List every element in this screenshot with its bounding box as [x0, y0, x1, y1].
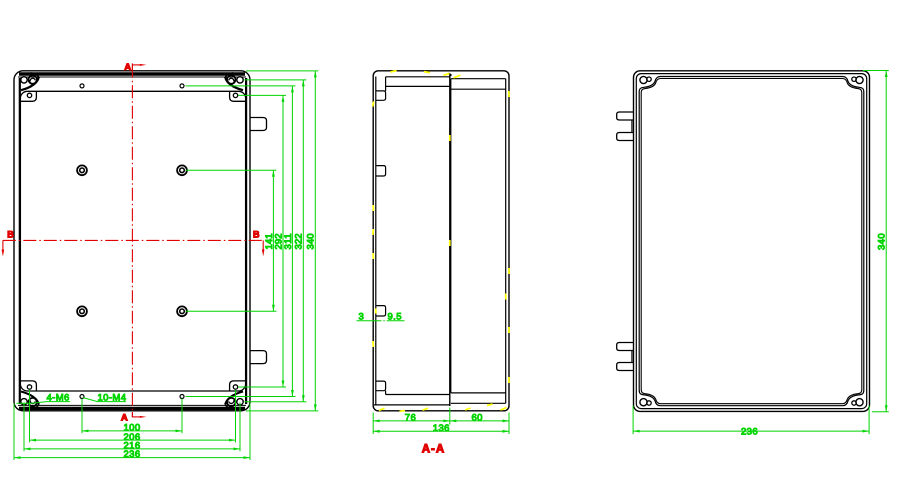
svg-text:340: 340	[306, 233, 317, 250]
svg-text:322: 322	[294, 233, 305, 250]
svg-text:B: B	[253, 230, 260, 240]
svg-text:A-A: A-A	[422, 443, 445, 455]
svg-text:340: 340	[877, 233, 888, 250]
svg-text:236: 236	[741, 426, 758, 437]
svg-text:236: 236	[124, 449, 141, 460]
svg-text:136: 136	[433, 423, 450, 434]
svg-text:B: B	[7, 230, 14, 240]
svg-text:A: A	[121, 412, 128, 423]
svg-text:60: 60	[472, 413, 483, 424]
svg-text:A: A	[124, 62, 131, 73]
svg-text:311: 311	[283, 233, 294, 250]
svg-text:76: 76	[405, 413, 416, 424]
